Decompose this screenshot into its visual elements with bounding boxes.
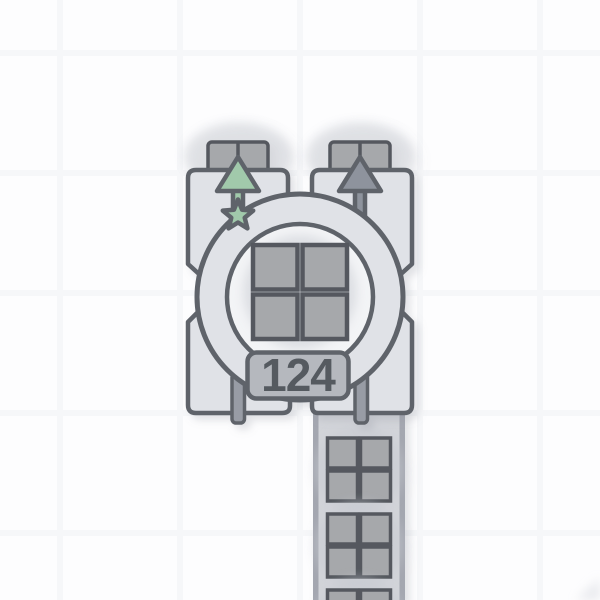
- square-shape-icon: [328, 590, 391, 600]
- storage-count: 124: [261, 349, 336, 401]
- game-viewport: 124: [0, 0, 600, 600]
- conveyor-belt[interactable]: [313, 410, 405, 600]
- square-shape-icon: [328, 514, 391, 577]
- belt-right-rail: [400, 410, 406, 600]
- square-shape-icon: [328, 438, 391, 501]
- corner-shadow: [576, 578, 600, 600]
- storage-building[interactable]: 124: [184, 122, 414, 423]
- storage-count-badge: 124: [248, 349, 349, 401]
- scene-canvas: 124: [0, 0, 600, 600]
- belt-left-rail: [313, 410, 319, 600]
- belt-item: [315, 502, 403, 590]
- belt-item: [315, 426, 403, 514]
